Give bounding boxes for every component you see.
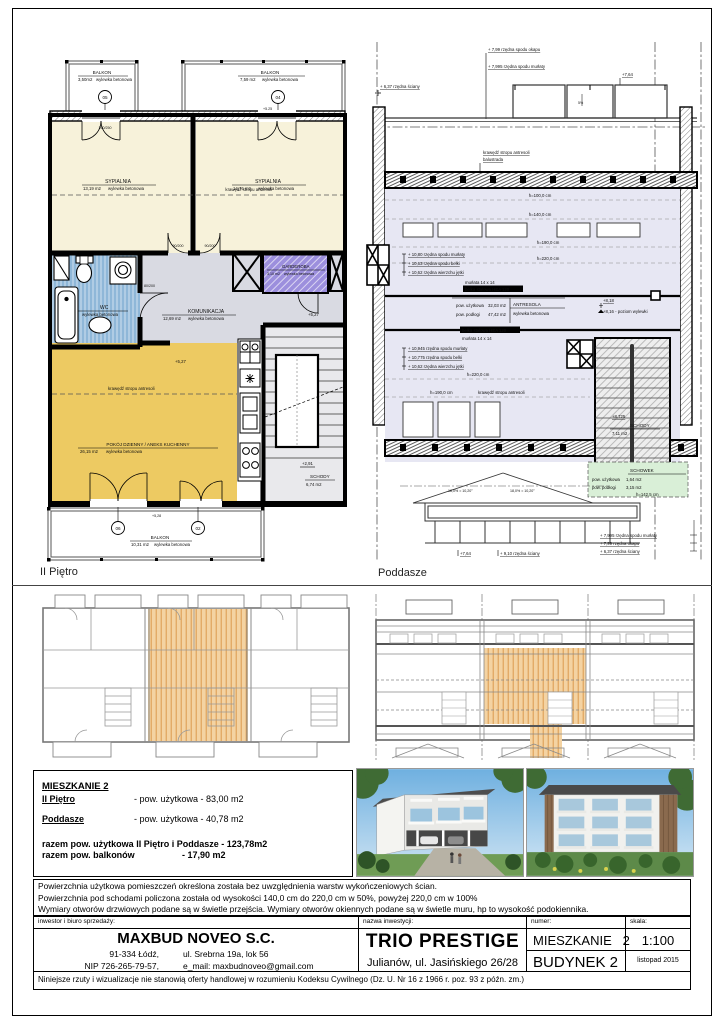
balkon04-label: BALKON <box>261 70 280 75</box>
company-street: ul. Srebrna 19a, lok 56 <box>183 949 343 959</box>
schowek-label: SCHOWEK <box>630 468 655 473</box>
ann-h220: h=220,0 cm <box>537 256 560 261</box>
ann-belka-hea-a: belka stalowa HEA 120 <box>465 287 510 292</box>
attic-stairs <box>595 338 670 480</box>
ann-murlata-14b: murłata 14 x 14 <box>462 336 492 341</box>
project-name: TRIO PRESTIGE <box>359 931 526 953</box>
plan-title-ii-pietro: II Piętro <box>40 566 78 578</box>
company-name: MAXBUD NOVEO S.C. <box>34 930 358 947</box>
ann-level-816: +8,16 - poziom wylewki <box>603 309 648 314</box>
ann-jetka-1062b: + 10,62 rzędna wierzchu jętki <box>408 364 464 369</box>
balkon-dol-area: 10,31 m2 <box>131 542 150 547</box>
scale-label: skala: <box>626 917 690 929</box>
company-nip: NIP 726-265-79-57, <box>49 961 159 971</box>
summary-balcony-label: razem pow. balkonów <box>42 850 182 861</box>
window-mark-05: 05 <box>102 95 108 100</box>
schowek-usable-label: pow. użytkowa <box>592 477 621 482</box>
ann-belka-hea-b: belka stalowa HEA 120 <box>462 328 507 333</box>
level-291: +2,91 <box>302 461 313 466</box>
right-wall <box>680 107 692 425</box>
sypialnia-right-label: SYPIALNIA <box>255 179 282 185</box>
general-notes: Powierzchnia użytkowa pomieszczeń określ… <box>33 879 691 916</box>
wc-label: WC <box>100 305 109 311</box>
ann-h220b: h=220,0 cm <box>467 372 490 377</box>
balkon05-area: 3,50m2 <box>78 77 93 82</box>
number-label: numer: <box>527 917 625 929</box>
antresola-edge-note-2: krawędź stropu antresoli <box>108 386 155 391</box>
balkon05-finish: wylewka betonowa <box>96 77 133 82</box>
note-line-3: Wymiary otworów drzwiowych podane są w ś… <box>38 904 686 916</box>
apartment-title: MIESZKANIE 2 <box>42 781 352 792</box>
ann-edge: krawędź stropu antresoli <box>483 150 530 155</box>
wc-finish: wylewka betonowa <box>82 312 119 317</box>
schowek-floor: 3,15 m2 <box>626 485 642 490</box>
balcony-grid <box>557 799 654 849</box>
project-address: Julianów, ul. Jasińskiego 26/28 <box>359 957 526 969</box>
investor-label: inwestor i biuro sprzedaży: <box>34 917 358 929</box>
attic-schody-area: 7,11 m2 <box>612 431 628 436</box>
project-label: nazwa inwestycji: <box>359 917 526 929</box>
summary-floor2-label: II Piętro <box>42 794 134 805</box>
apartment-summary: MIESZKANIE 2 II Piętro - pow. użytkowa -… <box>33 770 353 877</box>
sypialnia-right-finish: wylewka betonowa <box>258 186 295 191</box>
ann-slope5: 5% <box>578 101 584 105</box>
room-pokoj-dzienny <box>52 343 237 503</box>
ann-h100: h=100,0 cm <box>529 193 552 198</box>
antresola-label: ANTRESOLA <box>513 302 542 307</box>
ann-level-8725: +8,725 <box>612 414 626 419</box>
window-mark-04: 04 <box>275 95 281 100</box>
summary-attic-label: Poddasze <box>42 814 134 825</box>
summary-attic-value: - pow. użytkowa - 40,78 m2 <box>134 814 244 825</box>
level-528: +5,28 <box>152 514 161 518</box>
title-block-project: nazwa inwestycji: TRIO PRESTIGE Julianów… <box>359 917 527 972</box>
ann-h190b: h=190,0 cm <box>430 390 453 395</box>
schowek-usable: 1,64 m2 <box>626 477 642 482</box>
balkon-dol-label: BALKON <box>151 535 170 540</box>
ann-level-764: +7,64 <box>622 72 633 77</box>
note-line-2: Powierzchnia pod schodami policzona zost… <box>38 893 686 905</box>
pokoj-label: POKÓJ DZIENNY / ANEKS KUCHENNY <box>106 441 189 447</box>
roof-gable <box>413 473 593 503</box>
schowek-h: h=142,5 cm <box>636 492 659 497</box>
hob-symbol <box>246 374 255 383</box>
komunikacja-area: 12,69 m2 <box>163 316 182 321</box>
pokoj-finish: wylewka betonowa <box>106 449 143 454</box>
antresola-finish: wylewka betonowa <box>513 311 550 316</box>
sypialnia-left-area: 13,19 m2 <box>83 186 102 191</box>
ann-h190: h=190,0 cm <box>537 240 560 245</box>
antresola-floor-label: pow. podłogi <box>456 312 480 317</box>
ann-h190-edge: krawędź stropu antresoli <box>478 390 525 395</box>
ann-wall-637: + 6,37 rzędna ściany <box>380 84 421 89</box>
garderoba-label: GARDEROBA <box>282 264 310 269</box>
summary-floor2-value: - pow. użytkowa - 83,00 m2 <box>134 794 244 805</box>
render-photo-rear <box>526 768 694 877</box>
kitchen-counter <box>238 339 262 481</box>
skylight-row-2 <box>403 402 500 437</box>
note-line-1: Powierzchnia użytkowa pomieszczeń określ… <box>38 881 686 893</box>
schody-label: SCHODY <box>310 474 330 479</box>
ann-okap-799b: + 7,99 rzędna okapu <box>600 541 640 546</box>
company-city: 91-334 Łódź, <box>49 949 159 959</box>
company-email: e_mail: maxbudnoveo@gmail.com <box>183 961 343 971</box>
komunikacja-finish: wylewka betonowa <box>188 316 225 321</box>
ann-level-818: +8,18 <box>603 298 614 303</box>
ann-murlata-14a: murłata 14 x 14 <box>465 280 495 285</box>
ann-jetka-1062: + 10,62 rzędna wierzchu jętki <box>408 270 464 275</box>
balkon05-label: BALKON <box>93 70 112 75</box>
date-value: listopad 2015 <box>626 951 690 972</box>
pokoj-area: 26,15 m2 <box>80 449 99 454</box>
skylight-row-1 <box>403 223 640 237</box>
title-block-number: numer: MIESZKANIE 2 BUDYNEK 2 <box>527 917 626 972</box>
render-photo-front <box>356 768 524 877</box>
antresola-floor: 47,42 m2 <box>488 312 507 317</box>
window-mark-06: 06 <box>115 526 121 531</box>
ann-balustrada: balustrada <box>483 157 504 162</box>
ann-murlata-7995b: + 7,995 rzędna spodu murłaty <box>600 533 658 538</box>
title-block-scale: skala: 1:100 listopad 2015 <box>626 917 690 972</box>
ann-belka-1063: + 10,63 rzędna spodu belki <box>408 261 460 266</box>
garderoba-finish: wylewka betonowa <box>284 272 314 276</box>
key-plan-floor <box>35 592 357 764</box>
komunikacja-label: KOMUNIKACJA <box>188 309 225 315</box>
sypialnia-left-label: SYPIALNIA <box>105 179 132 185</box>
title-block: inwestor i biuro sprzedaży: MAXBUD NOVEO… <box>33 916 691 972</box>
schody-area: 6,74 m2 <box>306 482 322 487</box>
ann-murlata-10945: + 10,945 rzędna spodu murłaty <box>408 346 468 351</box>
ann-murlata-7995: + 7,995 rzędna spodu murłaty <box>488 64 546 69</box>
dim-wc-door: 80/200 <box>144 284 155 288</box>
floor-plan-ii-pietro: BALKON 3,50m2 wylewka betonowa 05 BALKON… <box>20 25 365 570</box>
level-527a: +5,27 <box>175 359 186 364</box>
antresola-usable-label: pow. użytkowa <box>456 303 485 308</box>
key-plan-attic <box>362 592 702 764</box>
ann-wall-910: + 9,10 rzędna ściany <box>500 551 541 556</box>
highlight-unit <box>148 609 248 741</box>
scale-value: 1:100 <box>626 929 690 951</box>
section-divider <box>12 585 712 586</box>
title-block-investor: inwestor i biuro sprzedaży: MAXBUD NOVEO… <box>34 917 359 972</box>
ann-roof-slope-2: 18,0% = 10,20° <box>510 489 535 493</box>
summary-total: razem pow. użytkowa II Piętro i Poddasze… <box>42 839 352 850</box>
ann-roof-slope-1: 18,0% = 10,20° <box>448 489 473 493</box>
antresola-usable: 32,03 m2 <box>488 303 507 308</box>
floor-plan-poddasze: + 6,37 rzędna ściany + 7,99 rzędna spodu… <box>360 30 705 570</box>
building-number: BUDYNEK 2 <box>527 951 625 972</box>
balkon-dol-finish: wylewka betonowa <box>154 542 191 547</box>
window-mark-02: 02 <box>195 526 201 531</box>
plan-title-poddasze: Poddasze <box>378 567 427 579</box>
inner-window <box>567 340 593 368</box>
left-wall-window <box>367 245 389 285</box>
ann-h140: h=140,0 cm <box>529 212 552 217</box>
balkon04-area: 7,59 m2 <box>240 77 256 82</box>
balkon04-finish: wylewka betonowa <box>262 77 299 82</box>
ann-okap-799: + 7,99 rzędna spodu okapu <box>488 47 541 52</box>
summary-balcony-value: - 17,90 m2 <box>182 850 226 861</box>
ann-murlata-1080: + 10,80 rzędna spodu murłaty <box>408 252 466 257</box>
legal-footer: Niniejsze rzuty i wizualizacje nie stano… <box>33 972 691 990</box>
apartment-number: MIESZKANIE 2 <box>527 929 625 951</box>
drawing-sheet: BALKON 3,50m2 wylewka betonowa 05 BALKON… <box>0 0 724 1024</box>
ann-wall-637b: + 6,37 rzędna ściany <box>600 549 641 554</box>
sypialnia-left-finish: wylewka betonowa <box>108 186 145 191</box>
attic-schody-label: SCHODY <box>630 423 650 428</box>
ann-level-764b: +7,64 <box>460 551 471 556</box>
sypialnia-right-area: 14,76 m2 <box>233 186 252 191</box>
garderoba-area: 3,10 m2 <box>267 272 280 276</box>
ann-belka-10775: + 10,775 rzędna spodu belki <box>408 355 462 360</box>
